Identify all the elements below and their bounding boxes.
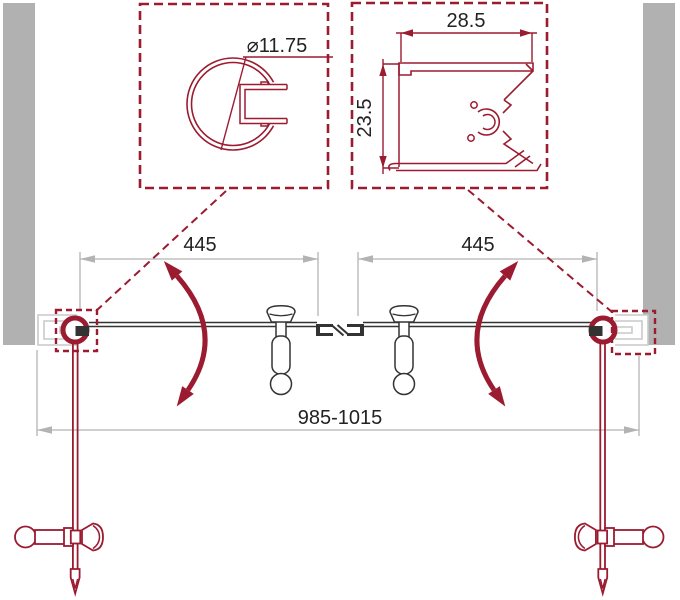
door-bottom-pivot bbox=[71, 569, 80, 594]
handle-grip bbox=[612, 530, 643, 544]
pivot-profile-detail: ⌀11.75 bbox=[140, 4, 333, 188]
dim-arrow-down bbox=[379, 156, 386, 168]
left-wall bbox=[3, 3, 35, 345]
callout-leader-lines bbox=[96, 190, 612, 312]
dim-arrow-left bbox=[37, 426, 52, 434]
dim-arrow-right bbox=[624, 426, 639, 434]
dim-left-door-width: 445 bbox=[80, 234, 318, 316]
left-open-door bbox=[15, 342, 103, 594]
dim-arrow-left bbox=[401, 29, 413, 36]
handle-grip bbox=[395, 336, 413, 374]
dim-total-width: 985-1015 bbox=[37, 350, 639, 436]
pivot-profile-diameter-label: ⌀11.75 bbox=[247, 35, 308, 57]
handle-grip bbox=[272, 336, 290, 374]
dim-arrow-right bbox=[303, 255, 318, 263]
right-door-handle bbox=[390, 306, 418, 395]
handle-end bbox=[394, 374, 415, 395]
dim-arrow-up bbox=[379, 64, 386, 76]
handle-end bbox=[643, 527, 664, 548]
right-open-door bbox=[575, 342, 664, 594]
wall-profile-width-label: 28.5 bbox=[447, 10, 486, 32]
handle-end bbox=[15, 527, 36, 548]
drawing-svg: 445 445 985-1015 bbox=[0, 0, 680, 600]
right-wall bbox=[643, 3, 675, 345]
door-bottom-pivot bbox=[598, 569, 607, 594]
dim-arrow-right bbox=[582, 255, 597, 263]
handle-end bbox=[271, 374, 292, 395]
right-door-width-label: 445 bbox=[461, 234, 494, 256]
wall-profile-detail: 28.5 23.5 bbox=[352, 3, 547, 188]
dim-arrow-left bbox=[80, 255, 95, 263]
left-door-width-label: 445 bbox=[183, 234, 216, 256]
left-pivot bbox=[63, 318, 89, 342]
right-swing-arrow bbox=[477, 261, 518, 407]
detail-frame bbox=[140, 4, 328, 188]
glass-panels bbox=[89, 323, 596, 327]
total-width-label: 985-1015 bbox=[298, 407, 383, 429]
left-swing-arrow bbox=[164, 261, 205, 407]
center-seal bbox=[316, 324, 364, 336]
dim-arrow-right bbox=[520, 29, 532, 36]
technical-drawing-canvas: 445 445 985-1015 bbox=[0, 0, 680, 600]
wall-profile-height-label: 23.5 bbox=[354, 99, 376, 138]
dim-arrow-left bbox=[358, 255, 373, 263]
wall-profile-cross-section bbox=[389, 63, 541, 171]
dim-right-door-width: 445 bbox=[358, 234, 597, 316]
handle-grip bbox=[35, 530, 66, 544]
left-door-handle bbox=[267, 306, 295, 395]
